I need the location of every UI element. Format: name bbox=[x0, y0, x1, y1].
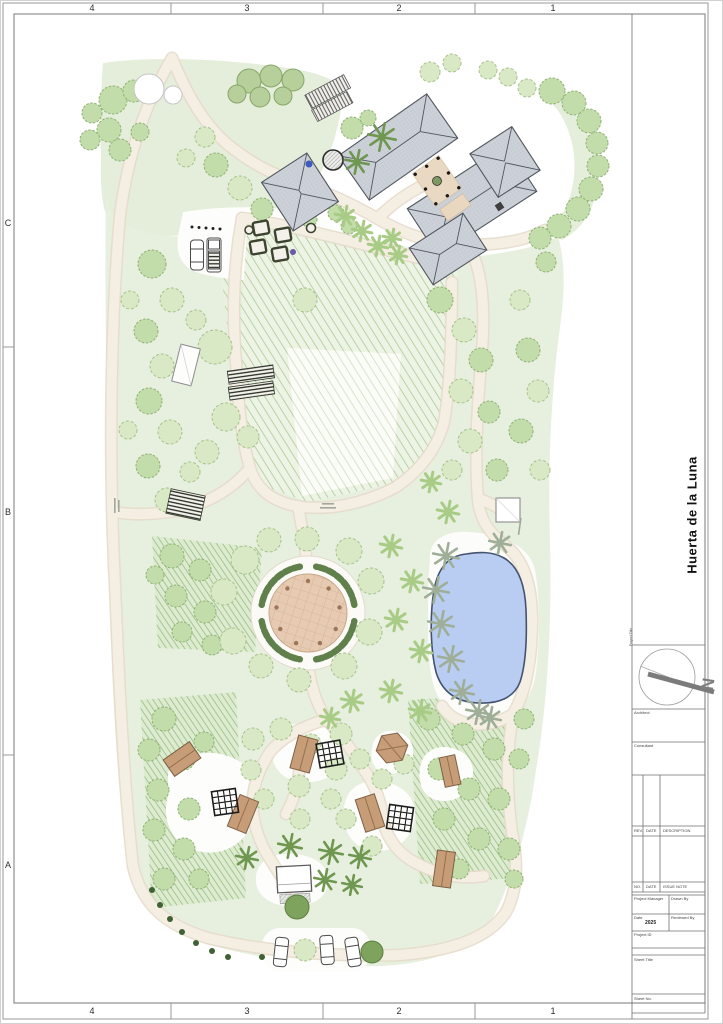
tree bbox=[294, 939, 316, 961]
palm-center bbox=[288, 844, 292, 848]
tree bbox=[257, 528, 281, 552]
palm-center bbox=[460, 690, 464, 694]
tree bbox=[198, 330, 232, 364]
tree bbox=[372, 769, 392, 789]
tree bbox=[479, 61, 497, 79]
tree bbox=[212, 403, 240, 431]
project-title: Huerta de la Luna bbox=[685, 456, 700, 574]
tree bbox=[134, 319, 158, 343]
spa bbox=[323, 150, 343, 170]
site-plan-drawing bbox=[0, 0, 723, 1024]
tree bbox=[505, 870, 523, 888]
palm-center bbox=[444, 554, 449, 559]
date-value: 2025 bbox=[645, 920, 656, 926]
blue-marker bbox=[306, 161, 313, 168]
shrub-dot bbox=[225, 954, 231, 960]
consultant-label: Consultant bbox=[634, 744, 653, 748]
grid-col-label: 3 bbox=[244, 1006, 249, 1016]
tree bbox=[195, 127, 215, 147]
tree bbox=[478, 401, 500, 423]
tree bbox=[527, 380, 549, 402]
palm-center bbox=[498, 541, 502, 545]
sheet-no-label: Sheet No. bbox=[634, 997, 652, 1001]
tree bbox=[539, 78, 565, 104]
tree bbox=[587, 155, 609, 177]
palm-center bbox=[410, 579, 414, 583]
tree bbox=[510, 290, 530, 310]
date-header: DATE bbox=[646, 885, 656, 889]
tree bbox=[336, 538, 362, 564]
tree bbox=[82, 103, 102, 123]
shrub-dot bbox=[179, 929, 185, 935]
palm-center bbox=[245, 856, 249, 860]
tree bbox=[138, 739, 160, 761]
date-header: DATE bbox=[646, 829, 656, 833]
tree bbox=[350, 749, 370, 769]
tree bbox=[427, 287, 453, 313]
tree bbox=[97, 118, 121, 142]
tree bbox=[158, 420, 182, 444]
tree bbox=[194, 601, 216, 623]
tree bbox=[358, 568, 384, 594]
date-label: Date bbox=[634, 916, 642, 920]
tree bbox=[321, 789, 341, 809]
palm-center bbox=[329, 850, 333, 854]
tree bbox=[249, 654, 273, 678]
tree bbox=[138, 250, 166, 278]
parked-car bbox=[191, 240, 204, 270]
tree-outline bbox=[134, 74, 164, 104]
palm-center bbox=[389, 544, 393, 548]
tree bbox=[204, 153, 228, 177]
tree bbox=[172, 622, 192, 642]
palm-center bbox=[323, 878, 327, 882]
tree bbox=[109, 139, 131, 161]
tree bbox=[290, 809, 310, 829]
tree bbox=[121, 291, 139, 309]
palm-center bbox=[434, 588, 439, 593]
grid-col-label: 4 bbox=[89, 3, 94, 13]
tree bbox=[442, 460, 462, 480]
tree bbox=[566, 197, 590, 221]
tree bbox=[530, 460, 550, 480]
tree bbox=[250, 87, 270, 107]
palm-center bbox=[394, 618, 398, 622]
no-header: NO. bbox=[634, 885, 641, 889]
tree bbox=[270, 718, 292, 740]
palm-center bbox=[350, 883, 354, 887]
tree bbox=[189, 559, 211, 581]
palm-center bbox=[379, 134, 384, 139]
tree bbox=[80, 130, 100, 150]
tree bbox=[483, 738, 505, 760]
tree bbox=[274, 87, 292, 105]
palm-center bbox=[439, 622, 444, 627]
tree bbox=[237, 426, 259, 448]
tree bbox=[165, 585, 187, 607]
tree bbox=[293, 288, 317, 312]
palm-center bbox=[396, 253, 399, 256]
shed bbox=[496, 498, 520, 522]
tree bbox=[518, 79, 536, 97]
palm-center bbox=[355, 160, 359, 164]
tree bbox=[361, 941, 383, 963]
tree bbox=[150, 354, 174, 378]
palm-center bbox=[343, 214, 347, 218]
grid-col-label: 1 bbox=[550, 1006, 555, 1016]
tree bbox=[241, 760, 261, 780]
palm-center bbox=[418, 709, 422, 713]
palm-center bbox=[446, 510, 450, 514]
tree bbox=[536, 252, 556, 272]
tree bbox=[189, 869, 209, 889]
sheet-title-label: Sheet Title bbox=[634, 958, 653, 962]
palm-center bbox=[389, 689, 393, 693]
tree bbox=[177, 149, 195, 167]
tree bbox=[160, 288, 184, 312]
grid-row-label: A bbox=[5, 860, 11, 870]
purple-marker bbox=[290, 249, 296, 255]
tree bbox=[468, 828, 490, 850]
tree bbox=[547, 214, 571, 238]
tree bbox=[147, 779, 169, 801]
tree bbox=[509, 419, 533, 443]
shrub-dot bbox=[157, 902, 163, 908]
tree bbox=[119, 421, 137, 439]
tree bbox=[173, 838, 195, 860]
tree bbox=[443, 54, 461, 72]
tree bbox=[529, 227, 551, 249]
palm-center bbox=[376, 244, 380, 248]
grid-col-label: 4 bbox=[89, 1006, 94, 1016]
issue-note-header: ISSUE NOTE bbox=[663, 885, 687, 889]
tree bbox=[220, 628, 246, 654]
tree bbox=[420, 62, 440, 82]
tree bbox=[458, 778, 480, 800]
tree bbox=[452, 318, 476, 342]
palm-center bbox=[429, 480, 433, 484]
tree bbox=[499, 68, 517, 86]
tree bbox=[287, 668, 311, 692]
tree bbox=[469, 348, 493, 372]
tree bbox=[211, 579, 237, 605]
grid-col-label: 2 bbox=[396, 3, 401, 13]
tree bbox=[433, 808, 455, 830]
project-title-label: Project Title bbox=[629, 628, 633, 646]
tree bbox=[360, 110, 376, 126]
grid-row-label: B bbox=[5, 507, 11, 517]
palm-center bbox=[419, 649, 423, 653]
palm-center bbox=[488, 716, 492, 720]
tree bbox=[509, 749, 529, 769]
architect-label: Architect bbox=[634, 711, 650, 715]
circular-plaza bbox=[251, 556, 365, 670]
palm-center bbox=[449, 657, 454, 662]
parked-truck bbox=[207, 238, 221, 272]
shrub-dot bbox=[209, 948, 215, 954]
grid-col-label: 1 bbox=[550, 3, 555, 13]
tree bbox=[498, 838, 520, 860]
description-header: DESCRIPTION bbox=[663, 829, 690, 833]
project-id-label: Project ID bbox=[634, 933, 652, 937]
tree bbox=[577, 109, 601, 133]
tree bbox=[195, 440, 219, 464]
palm-center bbox=[328, 716, 332, 720]
tree bbox=[341, 117, 363, 139]
tree-outline bbox=[164, 86, 182, 104]
project-manager-label: Project Manager bbox=[634, 897, 663, 901]
tree bbox=[153, 868, 175, 890]
tree bbox=[514, 709, 534, 729]
shrub-dot bbox=[167, 916, 173, 922]
rev-header: REV. bbox=[634, 829, 643, 833]
shrub-dot bbox=[193, 940, 199, 946]
tree bbox=[331, 653, 357, 679]
palm-center bbox=[476, 710, 480, 714]
swimming-pool bbox=[431, 553, 526, 704]
tree bbox=[242, 728, 264, 750]
grid-col-label: 2 bbox=[396, 1006, 401, 1016]
tree bbox=[488, 788, 510, 810]
drawn-by-label: Drawn By bbox=[671, 897, 688, 901]
tree bbox=[228, 176, 252, 200]
palm-center bbox=[358, 855, 362, 859]
tree bbox=[228, 85, 246, 103]
tree bbox=[288, 775, 310, 797]
tree bbox=[586, 132, 608, 154]
grid-row-label: C bbox=[5, 218, 12, 228]
tree bbox=[452, 723, 474, 745]
tree bbox=[579, 177, 603, 201]
tree bbox=[136, 454, 160, 478]
tree bbox=[231, 546, 259, 574]
drawing-sheet: 4 3 2 1 4 3 2 1 C B A Huerta de la Luna … bbox=[0, 0, 723, 1024]
tree bbox=[194, 732, 214, 752]
tree bbox=[449, 379, 473, 403]
shrub-dot bbox=[149, 887, 155, 893]
tree bbox=[152, 707, 176, 731]
palm-center bbox=[350, 699, 354, 703]
palm-center bbox=[390, 236, 393, 239]
tree bbox=[336, 809, 356, 829]
tree bbox=[180, 462, 200, 482]
tree bbox=[251, 198, 273, 220]
tree bbox=[186, 310, 206, 330]
tree bbox=[146, 566, 164, 584]
tree bbox=[486, 459, 508, 481]
tree bbox=[356, 619, 382, 645]
tree bbox=[458, 429, 482, 453]
tree bbox=[260, 65, 282, 87]
tree bbox=[136, 388, 162, 414]
tree bbox=[295, 527, 319, 551]
tree bbox=[285, 895, 309, 919]
tree bbox=[178, 798, 200, 820]
tree bbox=[516, 338, 540, 362]
reviewed-by-label: Reviewed By bbox=[671, 916, 694, 920]
tree bbox=[160, 544, 184, 568]
palm-center bbox=[360, 229, 364, 233]
tree bbox=[202, 635, 222, 655]
shrub-dot bbox=[259, 954, 265, 960]
tree bbox=[131, 123, 149, 141]
grid-col-label: 3 bbox=[244, 3, 249, 13]
tree bbox=[143, 819, 165, 841]
